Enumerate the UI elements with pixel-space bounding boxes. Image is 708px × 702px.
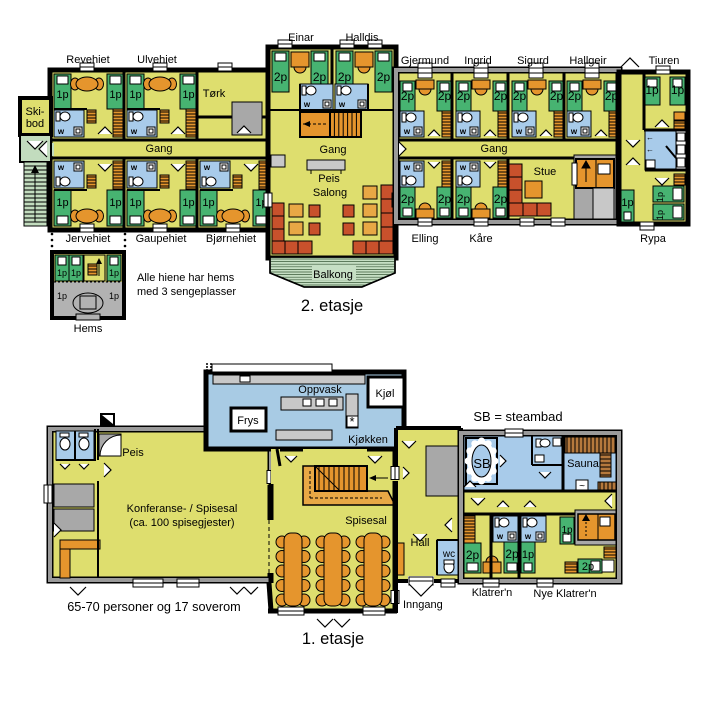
- svg-text:2p: 2p: [401, 89, 415, 103]
- svg-text:Klatrer'n: Klatrer'n: [472, 587, 513, 599]
- svg-text:Bjørnehiet: Bjørnehiet: [206, 233, 256, 245]
- svg-text:1. etasje: 1. etasje: [302, 630, 364, 648]
- svg-text:1p: 1p: [56, 197, 68, 209]
- svg-text:Salong: Salong: [313, 187, 347, 199]
- svg-text:Gjermund: Gjermund: [401, 55, 449, 67]
- svg-text:2p: 2p: [274, 70, 288, 84]
- svg-text:med 3 sengeplasser: med 3 sengeplasser: [137, 286, 236, 298]
- svg-text:Tiuren: Tiuren: [649, 55, 680, 67]
- svg-text:SB: SB: [473, 456, 490, 471]
- svg-text:1p: 1p: [109, 197, 121, 209]
- svg-text:2p: 2p: [438, 192, 452, 206]
- svg-text:2. etasje: 2. etasje: [301, 297, 363, 315]
- svg-text:w: w: [130, 127, 138, 136]
- svg-text:Nye Klatrer'n: Nye Klatrer'n: [533, 588, 596, 600]
- svg-text:(ca. 100 spisegjester): (ca. 100 spisegjester): [129, 517, 234, 529]
- svg-text:Hems: Hems: [74, 323, 103, 335]
- svg-text:Gang: Gang: [320, 144, 347, 156]
- svg-text:wc: wc: [442, 549, 455, 560]
- svg-text:Peis: Peis: [122, 447, 144, 459]
- svg-text:Inngang: Inngang: [403, 599, 443, 611]
- svg-text:1p: 1p: [655, 192, 665, 202]
- svg-text:1p: 1p: [71, 268, 81, 278]
- svg-text:1p: 1p: [56, 89, 68, 101]
- svg-text:1p: 1p: [522, 549, 534, 561]
- svg-text:w: w: [130, 163, 138, 172]
- svg-text:Kjøkken: Kjøkken: [348, 434, 388, 446]
- svg-text:1p: 1p: [129, 197, 141, 209]
- svg-text:Elling: Elling: [412, 233, 439, 245]
- svg-text:←: ←: [646, 133, 654, 142]
- svg-text:Revehiet: Revehiet: [66, 54, 109, 66]
- svg-text:Oppvask: Oppvask: [298, 384, 342, 396]
- svg-text:Tørk: Tørk: [203, 88, 226, 100]
- svg-text:w: w: [496, 532, 504, 541]
- svg-text:2p: 2p: [513, 89, 527, 103]
- svg-text:2p: 2p: [550, 89, 564, 103]
- svg-text:Kåre: Kåre: [469, 233, 492, 245]
- svg-text:Einar: Einar: [288, 32, 314, 44]
- svg-text:2p: 2p: [457, 192, 471, 206]
- svg-text:w: w: [570, 127, 578, 136]
- svg-text:w: w: [524, 532, 532, 541]
- svg-text:*: *: [349, 414, 354, 429]
- svg-text:Hallgeir: Hallgeir: [569, 55, 607, 67]
- svg-text:2p: 2p: [494, 89, 508, 103]
- svg-text:Jervehiet: Jervehiet: [66, 233, 111, 245]
- svg-text:2p: 2p: [568, 89, 582, 103]
- svg-text:Spisesal: Spisesal: [345, 515, 387, 527]
- svg-text:Gang: Gang: [481, 143, 508, 155]
- svg-text:2p: 2p: [438, 89, 452, 103]
- svg-text:1p: 1p: [57, 268, 67, 278]
- svg-text:1p: 1p: [182, 197, 194, 209]
- svg-text:w: w: [57, 127, 65, 136]
- svg-text:1p: 1p: [109, 291, 119, 301]
- svg-text:1p: 1p: [202, 197, 214, 209]
- svg-text:Gang: Gang: [146, 143, 173, 155]
- svg-text:w: w: [403, 127, 411, 136]
- svg-text:Rypa: Rypa: [640, 233, 667, 245]
- svg-text:1p: 1p: [109, 89, 121, 101]
- svg-text:Frys: Frys: [237, 415, 259, 427]
- svg-text:Ingrid: Ingrid: [464, 55, 492, 67]
- svg-text:Peis: Peis: [318, 173, 340, 185]
- svg-text:←: ←: [646, 145, 654, 154]
- svg-text:Gaupehiet: Gaupehiet: [136, 233, 187, 245]
- svg-text:SB = steambad: SB = steambad: [473, 409, 562, 424]
- svg-text:Konferanse- / Spisesal: Konferanse- / Spisesal: [127, 503, 238, 515]
- svg-text:w: w: [303, 100, 311, 109]
- svg-text:w: w: [459, 127, 467, 136]
- svg-text:w: w: [403, 163, 411, 172]
- svg-text:1p: 1p: [561, 525, 573, 536]
- svg-text:w: w: [57, 163, 65, 172]
- svg-text:2p: 2p: [338, 70, 352, 84]
- svg-text:Sigurd: Sigurd: [517, 55, 549, 67]
- svg-text:2p: 2p: [457, 89, 471, 103]
- svg-text:2p: 2p: [494, 192, 508, 206]
- svg-text:Balkong: Balkong: [313, 269, 353, 281]
- svg-text:65-70 personer og 17 soverom: 65-70 personer og 17 soverom: [67, 600, 241, 614]
- svg-text:1p: 1p: [182, 89, 194, 101]
- svg-text:Sauna: Sauna: [567, 458, 600, 470]
- svg-text:bod: bod: [26, 118, 44, 130]
- svg-text:1p: 1p: [645, 83, 659, 97]
- svg-text:1p: 1p: [671, 83, 685, 97]
- svg-text:Ulvehiet: Ulvehiet: [137, 54, 177, 66]
- svg-text:Halldis: Halldis: [345, 32, 379, 44]
- svg-text:w: w: [515, 127, 523, 136]
- svg-text:w: w: [203, 163, 211, 172]
- svg-text:Stue: Stue: [534, 166, 557, 178]
- svg-text:1p: 1p: [57, 291, 67, 301]
- svg-text:2p: 2p: [582, 561, 594, 573]
- svg-text:Alle hiene har hems: Alle hiene har hems: [137, 272, 235, 284]
- svg-text:Kjøl: Kjøl: [376, 388, 395, 400]
- svg-text:1p: 1p: [621, 197, 633, 209]
- svg-text:w: w: [338, 100, 346, 109]
- svg-text:2p: 2p: [505, 547, 519, 561]
- svg-text:1p: 1p: [655, 210, 665, 220]
- svg-text:1p: 1p: [129, 89, 141, 101]
- svg-text:2p: 2p: [466, 548, 480, 562]
- svg-text:2p: 2p: [377, 70, 391, 84]
- svg-text:2p: 2p: [401, 192, 415, 206]
- svg-text:2p: 2p: [313, 70, 327, 84]
- svg-text:1p: 1p: [109, 268, 119, 278]
- svg-text:Ski-: Ski-: [26, 106, 45, 118]
- svg-text:w: w: [459, 163, 467, 172]
